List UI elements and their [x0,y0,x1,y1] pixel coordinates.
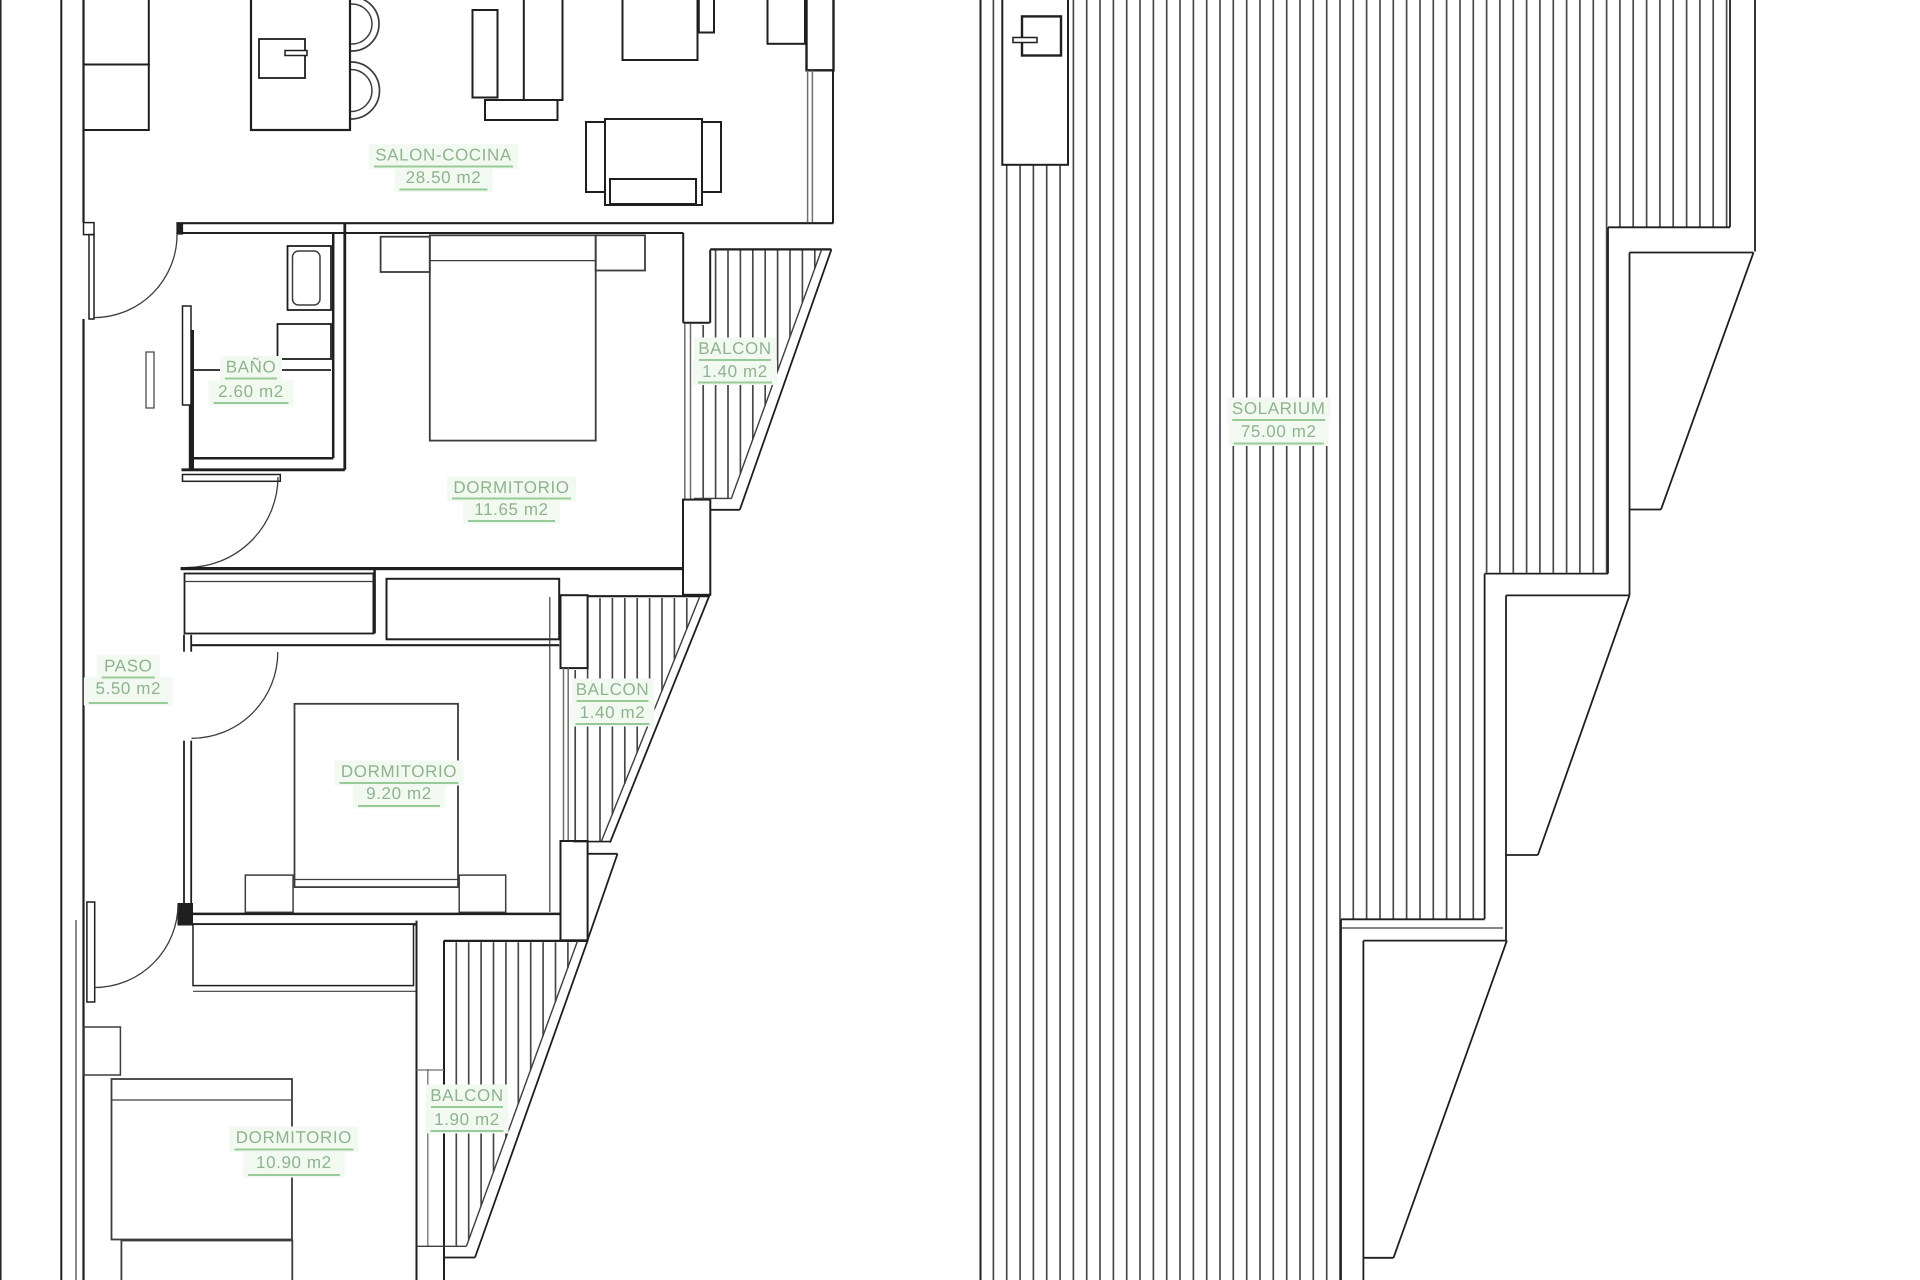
svg-text:BALCON: BALCON [698,339,772,358]
svg-text:DORMITORIO: DORMITORIO [236,1128,352,1147]
svg-text:1.40 m2: 1.40 m2 [580,703,646,722]
svg-text:BALCON: BALCON [576,680,650,699]
svg-text:5.50 m2: 5.50 m2 [95,679,161,698]
svg-text:DORMITORIO: DORMITORIO [453,478,569,497]
svg-text:SOLARIUM: SOLARIUM [1232,399,1326,418]
svg-text:10.90 m2: 10.90 m2 [256,1153,332,1172]
svg-text:2.60 m2: 2.60 m2 [218,382,284,401]
svg-text:DORMITORIO: DORMITORIO [341,762,457,781]
svg-text:11.65 m2: 11.65 m2 [474,500,548,519]
svg-text:1.40 m2: 1.40 m2 [702,362,768,381]
svg-text:28.50 m2: 28.50 m2 [406,168,482,187]
svg-text:BALCON: BALCON [430,1086,504,1105]
svg-text:SALON-COCINA: SALON-COCINA [375,146,512,165]
svg-text:1.90 m2: 1.90 m2 [434,1110,500,1129]
svg-text:PASO: PASO [104,657,152,676]
svg-text:9.20 m2: 9.20 m2 [366,784,432,803]
svg-text:75.00 m2: 75.00 m2 [1241,422,1317,441]
svg-text:BAÑO: BAÑO [226,358,277,377]
